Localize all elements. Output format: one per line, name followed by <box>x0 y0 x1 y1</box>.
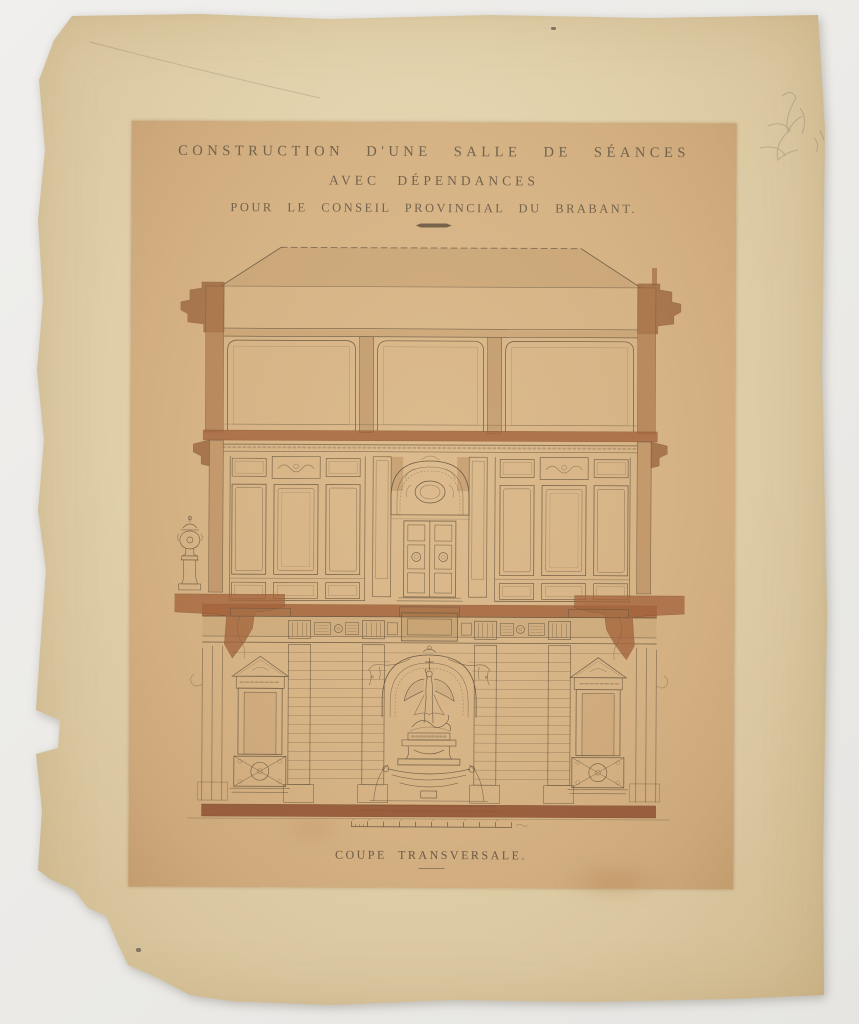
ground-story <box>174 594 685 828</box>
ground-line <box>188 818 670 820</box>
foxing-stain <box>558 861 668 903</box>
scratch-mark <box>85 32 335 112</box>
central-double-door <box>373 456 488 601</box>
scale-bar <box>352 820 528 828</box>
caption-underline <box>418 868 444 869</box>
scan-background: CONSTRUCTION D'UNE SALLE DE SÉANCES AVEC… <box>0 0 859 1024</box>
ink-speck <box>136 948 141 952</box>
title-line-1: CONSTRUCTION D'UNE SALLE DE SÉANCES <box>132 143 737 163</box>
entablature-center-panel <box>401 613 457 641</box>
fountain-pedestal-basin <box>356 733 502 812</box>
winged-figure-statue <box>404 658 454 731</box>
title-line-2: AVEC DÉPENDANCES <box>131 172 736 191</box>
ornamental-urn <box>177 516 202 590</box>
main-hall-story <box>177 440 667 618</box>
architectural-drawing <box>174 244 687 836</box>
ground-base-band <box>202 804 656 818</box>
title-line-3: POUR LE CONSEIL PROVINCIAL DU BRABANT. <box>131 200 736 218</box>
title-underline-ornament <box>416 223 452 228</box>
ink-speck <box>551 27 556 30</box>
mounted-print-panel: CONSTRUCTION D'UNE SALLE DE SÉANCES AVEC… <box>128 121 736 890</box>
paper-wrap: CONSTRUCTION D'UNE SALLE DE SÉANCES AVEC… <box>0 0 859 1024</box>
pencil-scribble <box>730 78 840 188</box>
drawing-caption: COUPE TRANSVERSALE. <box>128 847 733 865</box>
attic-story <box>180 282 681 442</box>
title-block: CONSTRUCTION D'UNE SALLE DE SÉANCES AVEC… <box>131 143 736 230</box>
roof-section <box>221 247 657 288</box>
aged-paper-sheet: CONSTRUCTION D'UNE SALLE DE SÉANCES AVEC… <box>30 10 830 1010</box>
